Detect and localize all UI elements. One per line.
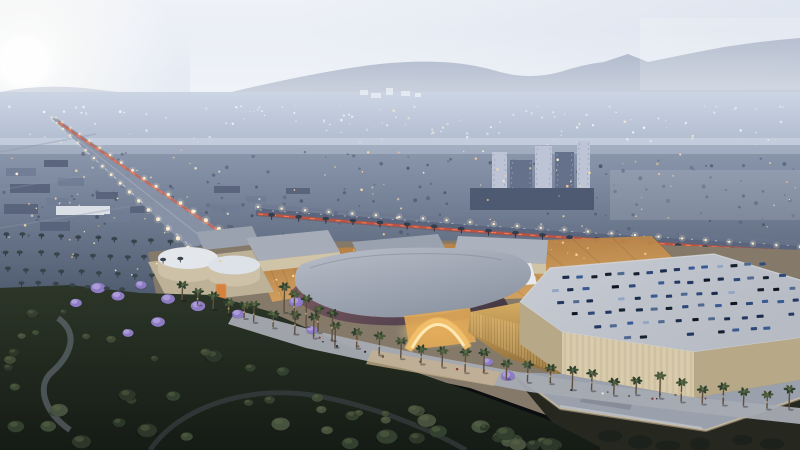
tower-window [578,153,579,154]
city-light [80,112,82,114]
grove-palm-crown [17,250,23,254]
gold-sparkle [644,253,646,255]
parked-car [610,324,617,328]
city-light [525,110,527,112]
midground-mist [610,170,800,220]
tower-window [536,168,537,169]
street-lamp [351,212,353,214]
tree-speckle [426,196,430,200]
palm-crown [317,308,320,311]
palm-shadow [331,340,337,342]
parked-car [651,307,658,311]
palm-silhouette-crown [458,227,465,231]
palm-trunk [295,315,296,334]
street-lamp [62,128,64,130]
palm-uplight [253,313,255,315]
street-lamp [69,134,71,136]
pedestrian [651,398,653,400]
parked-car [708,317,715,321]
gold-sparkle [273,280,274,281]
palm-shadow [356,348,362,350]
street-lamp [146,208,150,212]
palm-uplight [722,396,724,398]
warm-light [570,181,572,183]
warm-light [487,199,489,201]
palm-trunk [318,309,319,332]
parked-car [681,292,688,296]
palm-crown [400,339,403,342]
grove-palm-crown [39,233,45,237]
palm-crown [591,372,594,375]
parked-car [751,327,758,331]
warm-light [372,193,373,194]
warm-light [150,176,152,178]
garden-lamp [69,239,71,241]
warm-light [397,198,399,200]
tree-speckle [760,158,762,160]
warm-light [400,207,402,209]
park-tree-highlight [379,431,389,437]
tower-window [571,154,572,155]
city-light [393,109,396,112]
city-light [243,118,244,119]
street-lamp [120,161,123,164]
tree-speckle [594,213,597,216]
city-light [351,116,353,118]
tree-speckle [125,152,127,154]
street-lamp [587,230,589,232]
bright-building [386,88,393,95]
garden-lamp [115,270,117,272]
light-dot [59,203,60,204]
palm-crown [228,301,231,304]
parked-car [744,262,751,266]
city-light [466,132,469,135]
city-light [293,112,295,114]
street-lamp [131,169,134,172]
palm-crown [378,334,381,337]
park-tree-highlight [121,390,129,395]
street-lamp [167,193,170,196]
park-tree-highlight [33,331,37,333]
palm-crown [613,380,616,383]
pedestrian [705,398,707,400]
parked-car [698,303,705,307]
tree-speckle [418,185,421,188]
palm-uplight [766,401,768,403]
tree-speckle [169,185,172,188]
city-light [395,116,397,118]
tree-speckle [447,160,449,162]
parked-car [762,300,768,304]
palm-silhouette-crown [377,221,384,225]
tower-window [493,179,494,180]
garden-lamp [71,256,73,258]
warm-light [502,180,505,183]
city-light [490,126,492,128]
palm-shadow [591,390,597,392]
palm-shadow [253,322,259,324]
park-tree-highlight [245,400,250,403]
palm-uplight [526,373,528,375]
grove-palm-crown [3,232,9,236]
city-light [734,108,736,110]
palm-shadow [293,318,299,320]
parked-car [586,299,593,303]
grove-palm-crown [85,285,91,289]
warm-light [55,198,57,200]
parked-car [763,276,769,280]
palm-uplight [331,327,333,329]
palm-trunk [660,376,661,398]
park-tree-highlight [11,384,16,387]
tree-speckle [782,162,786,166]
warm-light [496,168,499,171]
tower-window [579,183,580,184]
warm-light [324,174,326,176]
parked-car [696,292,702,296]
grove-palm-crown [115,272,121,276]
tower-window [549,168,550,169]
park-tree-highlight [344,438,352,443]
tower-window [512,162,513,163]
warm-light [566,185,569,188]
tower-window [557,179,558,180]
pedestrian [628,395,630,397]
pedestrian [601,392,603,394]
parked-car [619,308,626,312]
street-lamp [56,122,58,124]
tower-window [557,174,558,175]
garden-lamp [156,263,158,265]
palm-silhouette-crown [268,213,275,217]
palm-crown [788,388,791,391]
palm-crown [181,283,184,286]
tower-window [511,182,512,183]
park-tree-highlight [543,439,553,445]
parked-car [572,312,578,316]
city-block [210,204,240,212]
city-light [643,126,646,129]
palm-silhouette-crown [295,215,302,219]
warm-light [186,196,188,198]
warm-light [362,171,364,173]
city-light [432,131,435,134]
city-light [325,130,327,132]
city-light [382,109,383,110]
light-dot [136,170,137,171]
tree-speckle [300,199,304,203]
parked-car [557,301,564,305]
city-light [498,132,500,134]
palm-shadow [680,402,686,404]
light-dot [144,218,145,219]
warm-light [383,184,384,185]
city-light [460,120,461,121]
jacaranda-highlight [163,295,171,301]
park-tree-highlight [323,427,329,431]
tree-speckle [221,197,223,199]
street-lamp [469,221,471,223]
city-light [8,105,11,108]
tower-window [578,178,579,179]
parked-car [747,276,754,280]
palm-crown [441,349,444,352]
palm-shadow [701,404,707,406]
palm-shadow [571,389,577,391]
parked-car [666,294,672,298]
warm-light [367,151,370,154]
city-light [323,120,325,122]
architectural-rendering [0,0,800,450]
park-tree-highlight [246,365,251,368]
palm-shadow [613,395,619,397]
city-light [232,123,234,125]
city-light [755,108,757,110]
park-tree-highlight [10,422,18,427]
park-tree-highlight [107,336,112,339]
city-block [46,198,68,206]
tree-speckle [91,194,94,197]
grove-palm-crown [35,281,41,285]
parked-car [687,332,695,336]
city-light [615,111,617,113]
park-tree-highlight [382,411,386,414]
grove-palm-crown [5,267,11,271]
parked-car [582,287,589,291]
warm-light [84,231,85,232]
grove-palm-crown [3,251,9,255]
palm-trunk [284,287,285,312]
park-tree-highlight [28,310,34,314]
park-tree-highlight [498,428,507,434]
park-tree-highlight [61,310,65,312]
tree-speckle [705,165,707,167]
street-lamp [166,227,170,231]
city-light [257,109,259,111]
street-lamp [154,185,157,188]
jacaranda-highlight [233,310,240,315]
grove-palm-crown [177,257,183,261]
warm-light [556,158,559,161]
tree-speckle [344,188,346,190]
street-lamp [70,127,72,129]
city-light [225,123,227,125]
warm-light [69,202,71,204]
city-light [684,122,687,125]
street-lamp [657,236,659,238]
city-light [63,110,65,112]
tree-speckle [283,202,286,205]
grove-palm-crown [119,287,125,291]
warm-light [767,226,768,227]
gold-sparkle [567,253,568,254]
corner-tree [598,430,623,442]
parked-car [788,312,794,316]
tree-speckle [304,151,306,153]
tower-window [550,148,551,149]
palm-crown [659,374,662,377]
tower-window [587,178,588,179]
warm-light [31,214,34,217]
palm-trunk [484,352,485,372]
city-light [755,132,757,134]
city-light [145,129,147,131]
city-light [349,123,350,124]
tree-speckle [762,223,765,226]
tree-speckle [71,195,73,197]
street-lamp [191,210,195,214]
tree-speckle [205,211,208,214]
warm-light [189,163,191,165]
parked-car [562,275,569,279]
tree-speckle [227,225,231,229]
parked-car [730,264,737,268]
parked-car [757,288,764,292]
city-light [431,129,433,131]
city-light [666,127,667,128]
tree-speckle [325,156,327,158]
street-lamp [516,225,518,227]
warm-light [588,172,591,175]
city-block [4,204,38,214]
warm-light [504,174,506,176]
city-light [123,112,125,114]
parked-car [651,294,658,298]
street-lamp [176,236,180,240]
parked-car [617,272,624,276]
palm-trunk [702,389,703,403]
warm-light [180,149,182,151]
tower-window [588,153,589,154]
park-tree-highlight [6,356,12,360]
park-tree-highlight [411,434,419,439]
city-light [382,122,383,123]
park-tree-highlight [512,440,520,445]
city-light [632,131,634,133]
palm-crown [464,351,467,354]
tree-speckle [121,153,124,156]
tower-window [504,159,505,160]
street-lamp [109,154,111,156]
parked-car [746,302,753,306]
warm-light [98,225,99,226]
city-block [44,160,68,167]
city-light [348,114,350,116]
city-light [779,106,781,108]
palm-trunk [332,313,333,340]
warm-light [294,189,296,191]
parked-car [666,307,673,311]
palm-shadow [441,367,447,369]
warm-light [11,157,12,158]
tree-speckle [206,203,210,207]
parked-car [633,272,639,276]
tower-window [530,177,531,178]
parked-car [742,316,748,320]
parked-car [660,269,667,273]
parked-car [793,298,799,302]
parked-car [789,287,795,291]
city-light [259,107,261,109]
city-light [442,126,444,128]
city-light [665,120,666,121]
tower-window [505,179,506,180]
park-tree-highlight [83,334,87,336]
grove-palm-crown [104,286,110,290]
tree-speckle [690,166,694,170]
grove-palm-crown [131,240,137,244]
pedestrian [319,337,321,339]
warm-light [91,167,93,169]
street-lamp [398,216,400,218]
parked-car [646,271,653,275]
warm-light [489,219,491,221]
tower-window [578,173,579,174]
palm-shadow [228,314,234,316]
parked-car [756,314,763,318]
tree-speckle [347,153,349,155]
street-lamp [422,217,424,219]
jacaranda-highlight [92,284,100,290]
parked-car [567,288,574,292]
city-light [783,106,784,107]
city-light [165,117,167,119]
tower-window [549,183,550,184]
park-tree-highlight [482,425,486,428]
street-lamp [375,214,377,216]
palm-crown [356,331,359,334]
palm-uplight [294,324,296,326]
pedestrian [607,391,609,393]
palm-uplight [591,382,593,384]
tree-speckle [36,219,38,221]
city-light [249,111,250,112]
parked-car [692,318,699,322]
gold-sparkle [279,292,280,293]
palm-shadow [483,372,489,374]
street-lamp [128,190,131,193]
street-lamp [62,122,64,124]
garden-lamp [219,260,221,262]
parked-car [701,265,708,269]
city-light [499,122,500,123]
bright-building [415,93,421,97]
warm-light [28,203,30,205]
parked-car [674,280,680,284]
light-dot [60,142,61,143]
tower-window [494,159,495,160]
city-light [456,115,457,116]
tree-speckle [407,156,409,158]
palm-crown [293,292,296,295]
grove-palm-crown [107,254,113,258]
city-light [541,117,543,119]
city-light [440,131,442,133]
city-light [554,116,556,118]
warm-light [77,193,79,195]
tree-speckle [449,158,452,161]
tree-speckle [2,191,5,194]
grove-palm-crown [148,238,154,242]
city-block [214,186,240,193]
palm-shadow [766,409,772,411]
jacaranda-highlight [136,281,142,285]
gold-sparkle [275,279,277,281]
tower-window [578,148,579,149]
palm-crown [253,303,256,306]
warm-light [622,163,623,164]
